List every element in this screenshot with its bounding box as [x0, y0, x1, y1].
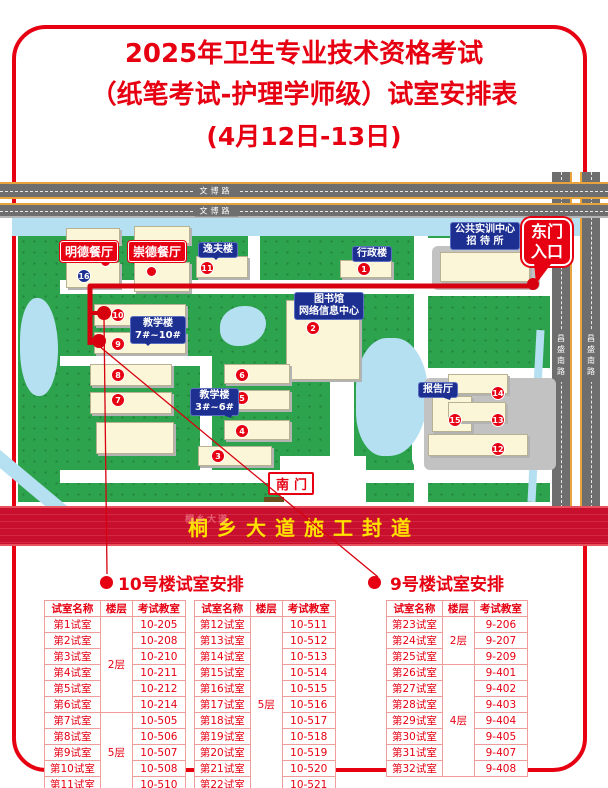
classroom-cell: 10-508	[132, 761, 185, 777]
right-road-label: 昌盛南路	[556, 330, 567, 382]
floor-cell: 4层	[442, 665, 474, 777]
classroom-cell: 10-212	[132, 681, 185, 697]
map-pin-6: 6	[235, 368, 249, 382]
room-name-cell: 第28试室	[387, 697, 443, 713]
column-header: 楼层	[442, 601, 474, 617]
map-pin-15: 15	[448, 413, 462, 427]
section-title-building10: 10号楼试室安排	[100, 570, 244, 595]
title-line-2: （纸笔考试-护理学师级）试室安排表	[0, 74, 608, 116]
map-pin-3: 3	[211, 449, 225, 463]
section-title-building9: 9号楼试室安排	[368, 570, 504, 595]
pond-west	[20, 298, 58, 396]
classroom-cell: 9-407	[474, 745, 527, 761]
room-name-cell: 第25试室	[387, 649, 443, 665]
section-title-building10-text: 10号楼试室安排	[118, 570, 244, 595]
classroom-cell: 10-519	[282, 745, 335, 761]
classroom-cell: 10-518	[282, 729, 335, 745]
map-pin-16: 16	[77, 269, 91, 283]
classroom-cell: 9-408	[474, 761, 527, 777]
training-center-label: 公共实训中心 招 待 所	[450, 222, 520, 250]
room-name-cell: 第2试室	[45, 633, 101, 649]
building9-tables: 试室名称楼层考试教室第23试室2层9-206第24试室9-207第25试室9-2…	[386, 600, 528, 777]
top-road-strip-1: 文博路	[0, 182, 608, 199]
classroom-cell: 9-404	[474, 713, 527, 729]
title-line-3: (4月12日-13日)	[0, 116, 608, 158]
table-row: 第7试室5层10-505	[45, 713, 186, 729]
room-name-cell: 第12试室	[194, 617, 250, 633]
map-pin-14: 14	[491, 386, 505, 400]
room-name-cell: 第18试室	[194, 713, 250, 729]
east-gate-callout: 东门 入口	[522, 218, 572, 266]
room-name-cell: 第30试室	[387, 729, 443, 745]
room-name-cell: 第9试室	[45, 745, 101, 761]
chongde-canteen-building	[134, 262, 190, 292]
library-label-line1: 图书馆	[299, 294, 359, 306]
classroom-cell: 10-521	[282, 777, 335, 788]
room-name-cell: 第10试室	[45, 761, 101, 777]
room-name-cell: 第14试室	[194, 649, 250, 665]
room-name-cell: 第22试室	[194, 777, 250, 788]
classroom-cell: 10-512	[282, 633, 335, 649]
teaching-building-4	[224, 420, 290, 440]
training-center-label-line1: 公共实训中心	[455, 224, 515, 236]
teaching-3-6-label-line2: 3#~6#	[195, 402, 234, 414]
teaching-3-6-label-line1: 教学楼	[195, 390, 234, 402]
training-center-building	[440, 252, 530, 282]
title-line-1: 2025年卫生专业技术资格考试	[0, 34, 608, 74]
report-hall-label: 报告厅	[418, 382, 458, 398]
right-road-strip-2: 昌盛南路	[580, 172, 600, 508]
map-pin-8: 8	[111, 368, 125, 382]
classroom-cell: 10-208	[132, 633, 185, 649]
room-name-cell: 第6试室	[45, 697, 101, 713]
room-name-cell: 第16试室	[194, 681, 250, 697]
column-header: 试室名称	[194, 601, 250, 617]
building	[96, 422, 174, 454]
classroom-cell: 10-520	[282, 761, 335, 777]
classroom-cell: 9-402	[474, 681, 527, 697]
classroom-cell: 9-401	[474, 665, 527, 681]
mingde-canteen-label: 明德餐厅	[60, 241, 118, 262]
column-header: 楼层	[100, 601, 132, 617]
classroom-cell: 9-405	[474, 729, 527, 745]
room-name-cell: 第15试室	[194, 665, 250, 681]
room-name-cell: 第11试室	[45, 777, 101, 788]
top-road-label: 文博路	[195, 205, 238, 216]
map-pin-12: 12	[491, 442, 505, 456]
classroom-cell: 9-206	[474, 617, 527, 633]
south-gate-label: 南门	[268, 472, 314, 495]
section-title-building9-text: 9号楼试室安排	[390, 570, 504, 595]
room-name-cell: 第17试室	[194, 697, 250, 713]
room-name-cell: 第26试室	[387, 665, 443, 681]
column-header: 楼层	[250, 601, 282, 617]
east-gate-line1: 东门	[531, 222, 563, 242]
map-pin-7: 7	[111, 393, 125, 407]
room-name-cell: 第19试室	[194, 729, 250, 745]
classroom-cell: 9-207	[474, 633, 527, 649]
road-watermark: 桐乡大道	[185, 512, 229, 525]
teaching-building-7	[90, 392, 172, 414]
room-name-cell: 第13试室	[194, 633, 250, 649]
building10-tables: 试室名称楼层考试教室第1试室2层10-205第2试室10-208第3试室10-2…	[44, 600, 336, 788]
admin-building-label: 行政楼	[352, 246, 392, 262]
east-gate-line2: 入口	[531, 242, 563, 262]
room-name-cell: 第24试室	[387, 633, 443, 649]
map-pin-13: 13	[491, 413, 505, 427]
room-name-cell: 第1试室	[45, 617, 101, 633]
yifu-building-label: 逸夫楼	[198, 242, 238, 258]
right-road-label: 昌盛南路	[586, 330, 597, 382]
table-row: 第12试室5层10-511	[194, 617, 335, 633]
classroom-cell: 10-517	[282, 713, 335, 729]
map-pin-9: 9	[111, 337, 125, 351]
library-label-line2: 网络信息中心	[299, 306, 359, 318]
teaching-building-6	[224, 364, 290, 384]
room-name-cell: 第23试室	[387, 617, 443, 633]
classroom-cell: 10-205	[132, 617, 185, 633]
teaching-building-8	[90, 364, 172, 386]
room-name-cell: 第31试室	[387, 745, 443, 761]
column-header: 考试教室	[132, 601, 185, 617]
campus-map: 昌盛南路 昌盛南路 文博路 文博路	[0, 168, 608, 560]
table-row: 第1试室2层10-205	[45, 617, 186, 633]
top-road-label: 文博路	[195, 185, 238, 196]
classroom-cell: 10-214	[132, 697, 185, 713]
floor-cell: 5层	[250, 617, 282, 788]
column-header: 试室名称	[45, 601, 101, 617]
classroom-cell: 10-514	[282, 665, 335, 681]
training-center-label-line2: 招 待 所	[455, 236, 515, 248]
map-pin-10: 10	[111, 308, 125, 322]
teaching-3-6-label: 教学楼 3#~6#	[190, 388, 239, 416]
room-name-cell: 第8试室	[45, 729, 101, 745]
teaching-7-10-label: 教学楼 7#~10#	[130, 316, 186, 344]
room-name-cell: 第29试室	[387, 713, 443, 729]
campus-path	[248, 236, 260, 284]
classroom-cell: 10-210	[132, 649, 185, 665]
classroom-cell: 10-516	[282, 697, 335, 713]
building-12	[428, 434, 528, 456]
classroom-cell: 10-211	[132, 665, 185, 681]
map-pin-1: 1	[357, 262, 371, 276]
bullet-dot-icon	[368, 576, 381, 589]
teaching-7-10-label-line1: 教学楼	[135, 318, 181, 330]
mingde-canteen-building	[66, 262, 120, 288]
classroom-cell: 10-513	[282, 649, 335, 665]
floor-cell: 5层	[100, 713, 132, 788]
classroom-cell: 10-507	[132, 745, 185, 761]
room-name-cell: 第27试室	[387, 681, 443, 697]
bullet-dot-icon	[100, 576, 113, 589]
room-name-cell: 第5试室	[45, 681, 101, 697]
room-name-cell: 第3试室	[45, 649, 101, 665]
room-name-cell: 第4试室	[45, 665, 101, 681]
exam-room-table: 试室名称楼层考试教室第23试室2层9-206第24试室9-207第25试室9-2…	[386, 600, 528, 777]
floor-cell: 2层	[442, 617, 474, 665]
poster-title: 2025年卫生专业技术资格考试 （纸笔考试-护理学师级）试室安排表 (4月12日…	[0, 34, 608, 158]
column-header: 考试教室	[282, 601, 335, 617]
table-row: 第26试室4层9-401	[387, 665, 528, 681]
table-row: 第23试室2层9-206	[387, 617, 528, 633]
map-pin-2: 2	[306, 321, 320, 335]
library-label: 图书馆 网络信息中心	[294, 292, 364, 320]
teaching-building-3	[198, 446, 272, 466]
exam-room-table: 试室名称楼层考试教室第12试室5层10-511第13试室10-512第14试室1…	[194, 600, 336, 788]
room-name-cell: 第32试室	[387, 761, 443, 777]
classroom-cell: 9-209	[474, 649, 527, 665]
column-header: 考试教室	[474, 601, 527, 617]
chongde-canteen-label: 崇德餐厅	[128, 241, 186, 262]
top-road-strip-2: 文博路	[0, 203, 608, 218]
room-name-cell: 第20试室	[194, 745, 250, 761]
classroom-cell: 10-505	[132, 713, 185, 729]
classroom-cell: 9-403	[474, 697, 527, 713]
column-header: 试室名称	[387, 601, 443, 617]
chongde-pointer-dot	[146, 266, 157, 277]
classroom-cell: 10-510	[132, 777, 185, 788]
classroom-cell: 10-506	[132, 729, 185, 745]
room-name-cell: 第7试室	[45, 713, 101, 729]
room-name-cell: 第21试室	[194, 761, 250, 777]
exam-arrangement-poster: 2025年卫生专业技术资格考试 （纸笔考试-护理学师级）试室安排表 (4月12日…	[0, 0, 608, 788]
exam-room-table: 试室名称楼层考试教室第1试室2层10-205第2试室10-208第3试室10-2…	[44, 600, 186, 788]
classroom-cell: 10-515	[282, 681, 335, 697]
closed-road-banner: 桐乡大道 桐乡大道施工封道	[0, 508, 608, 544]
teaching-7-10-label-line2: 7#~10#	[135, 330, 181, 342]
map-pin-4: 4	[235, 424, 249, 438]
floor-cell: 2层	[100, 617, 132, 713]
south-gate-marker	[264, 497, 284, 502]
classroom-cell: 10-511	[282, 617, 335, 633]
